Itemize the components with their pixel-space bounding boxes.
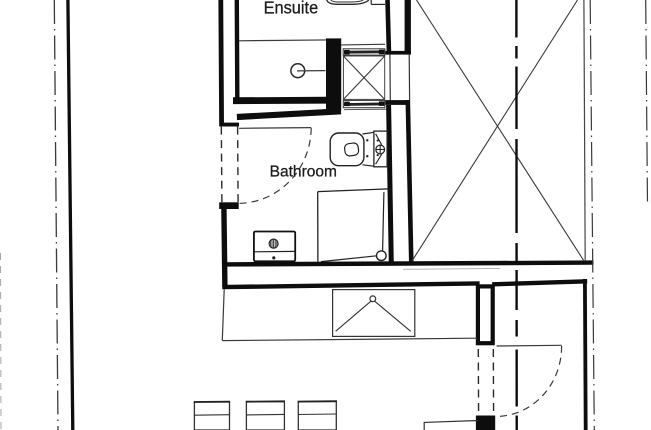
svg-text:Ensuite: Ensuite bbox=[264, 0, 319, 17]
svg-text:Bathroom: Bathroom bbox=[270, 163, 337, 180]
